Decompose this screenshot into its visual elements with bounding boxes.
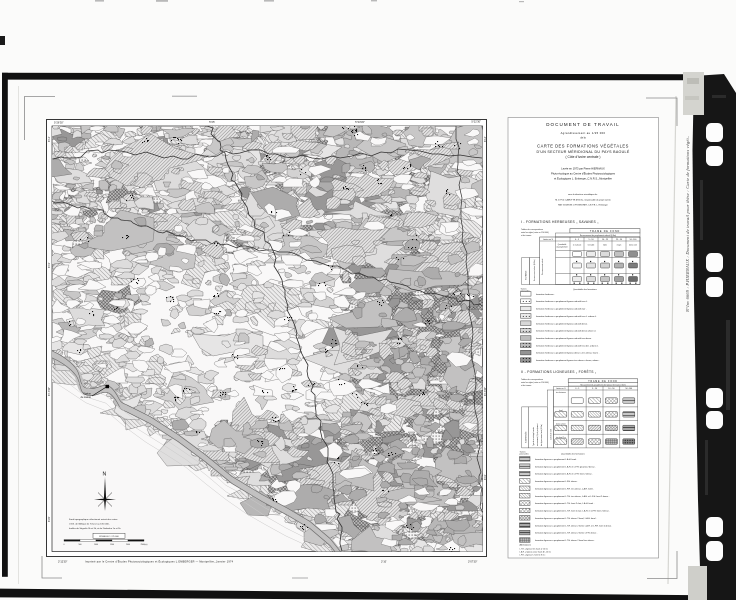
svg-text:L.F.H. = ligneux h. forml: L.F.H. = ligneux h. forml (< 8 m ) [520, 554, 546, 557]
svg-text:DOCUMENT DE TRAVAIL: DOCUMENT DE TRAVAIL [546, 122, 620, 127]
svg-text:Recouvrement du peuplement des: Recouvrement du peuplement des ligneux t… [580, 383, 626, 386]
svg-text:Imprimé par le Centre d'Études: Imprimé par le Centre d'Études Phytosoci… [85, 561, 234, 564]
svg-text:Tableau de correspondance: Tableau de correspondance [521, 229, 543, 231]
svg-text:L.T.H. = ligneux très hauts: L.T.H. = ligneux très hauts (> 10 m) [520, 548, 548, 551]
svg-text:5°22'30": 5°22'30" [471, 120, 481, 124]
svg-text:Levée en 1973 par Pierre HIERN: Levée en 1973 par Pierre HIERNAUX [561, 167, 605, 171]
svg-text:formation ligneuse a peuplemen: formation ligneuse a peuplement L.T.H. d… [535, 532, 598, 535]
svg-text:6°13': 6°13' [484, 136, 487, 142]
svg-text:I.G.N. de l'Afrique de l'Ouest: I.G.N. de l'Afrique de l'Ouest au 1/50 0… [69, 523, 110, 526]
svg-text:Recouvrement arboré: Recouvrement arboré [541, 259, 544, 275]
svg-text:Limites en %: Limites en % [556, 387, 566, 390]
svg-text:I - FORMATIONS HERBEUSES „ S: I - FORMATIONS HERBEUSES „ SAVANES „ [521, 220, 599, 224]
svg-text:de la: de la [580, 137, 586, 140]
svg-text:et les trames: et les trames [521, 234, 531, 237]
svg-text:Agrandissement au 1/25 000: Agrandissement au 1/25 000 [561, 131, 606, 135]
svg-text:formation herbeuse a peuplemen: formation herbeuse a peuplement ligneux … [536, 352, 600, 355]
svg-text:50 -100: 50 -100 [630, 239, 638, 241]
svg-text:formation ligneuse a peuplemen: formation ligneuse a peuplement L.T.H. t… [535, 495, 610, 498]
svg-text:formation herbeuse a peuplemen: formation herbeuse a peuplement ligneux … [536, 308, 587, 311]
svg-text:Recouvrement du peuplement arb: Recouvrement du peuplement arbustif (2-8… [580, 234, 617, 237]
svg-text:0: 0 [64, 544, 65, 546]
svg-text:formation herbeuse a peuplemen: formation herbeuse a peuplement ligneux … [536, 337, 593, 340]
svg-text:2°10': 2°10' [381, 561, 387, 564]
svg-text:2500(m): 2500(m) [141, 544, 148, 546]
svg-text:SUBMERGÉE: SUBMERGÉE [524, 431, 527, 443]
svg-text:II - FORMATIONS LIGNEUSES „: II - FORMATIONS LIGNEUSES „ FORÊTS „ [521, 369, 596, 374]
svg-text:1000: 1000 [94, 544, 98, 546]
svg-text:formation ligneuse a peuplemen: formation ligneuse a peuplement L.F.H. t… [535, 487, 594, 490]
svg-text:Tableau de correspondance: Tableau de correspondance [521, 379, 543, 381]
svg-text:6°20': 6°20' [48, 516, 51, 522]
svg-text:Quantitatifs des formations: Quantitatifs des formations [573, 288, 597, 291]
svg-text:formation herbeuse .: formation herbeuse . [536, 293, 555, 296]
svg-text:5°25': 5°25' [209, 120, 215, 124]
svg-text:Fond topographique sélectionné: Fond topographique sélectionné extrait d… [69, 518, 118, 521]
svg-text:formation herbeuse a peuplemen: formation herbeuse a peuplement ligneux … [536, 322, 589, 325]
svg-text:formation herbeuse a peuplemen: formation herbeuse a peuplement ligneux … [536, 359, 600, 362]
svg-text:S/CHARGE: S/CHARGE [525, 270, 528, 280]
svg-text:6°15': 6°15' [48, 262, 51, 268]
svg-text:formation ligneuse a peuplemen: formation ligneuse a peuplement L.T.H. d… [535, 517, 597, 520]
svg-text:et les trames: et les trames [521, 384, 531, 387]
svg-text:5°26'30": 5°26'30" [54, 121, 64, 125]
svg-text:ponctuelles: ponctuelles [520, 453, 529, 456]
svg-text:formation ligneuse a peuplemen: formation ligneuse a peuplement L.T.H. d… [535, 539, 595, 542]
svg-text:10 - 25: 10 - 25 [602, 239, 609, 241]
svg-text:6°17'30": 6°17'30" [484, 387, 487, 396]
svg-text:faible: faible [603, 245, 607, 247]
svg-text:formation herbeuse a peuplemen: formation herbeuse a peuplement ligneux … [536, 315, 597, 318]
svg-text:500: 500 [79, 544, 82, 546]
svg-text:6°17'30": 6°17'30" [48, 387, 51, 396]
svg-text:TRAME DE FOND: TRAME DE FOND [590, 230, 620, 233]
svg-text:feuilles de Séguéla 2b et 2d,: feuilles de Séguéla 2b et 2d, et de Dimb… [69, 527, 121, 530]
svg-text:M. le Prof. LAMOTTE (E.N.S.),: M. le Prof. LAMOTTE (E.N.S.), responsabl… [555, 198, 611, 201]
svg-text:de Lamto: de Lamto [81, 396, 92, 399]
svg-text:Quantitatifs des formations: Quantitatifs des formations [561, 453, 585, 456]
svg-text:formation ligneuse a peuplemen: formation ligneuse a peuplement L.T.H. f… [535, 502, 595, 505]
svg-text:CARTE DES FORMATIONS VÉGÉTA: CARTE DES FORMATIONS VÉGÉTALES [537, 144, 629, 149]
svg-text:6°13': 6°13' [48, 136, 51, 142]
svg-text:formation herbeuse a peuplemen: formation herbeuse a peuplement ligneux … [536, 344, 599, 347]
svg-text:Abréviations: Abréviations [520, 544, 531, 547]
svg-text:50 -100: 50 -100 [625, 388, 633, 390]
svg-text:formation ligneuse a peuplemen: formation ligneuse a peuplement L.T.H. f… [535, 510, 610, 513]
svg-text:entre les sigles (carte au 1/5: entre les sigles (carte au 1/50 000) [521, 381, 549, 384]
svg-text:N°Inv 6669 : P.HIERNAUX : Docu: N°Inv 6669 : P.HIERNAUX : Document de tr… [685, 135, 690, 313]
svg-text:formation herbeuse a peuplemen: formation herbeuse a peuplement ligneux … [536, 300, 588, 303]
svg-text:formation ligneuse a peuplemen: formation ligneuse a peuplement L.T.H. d… [535, 524, 613, 527]
svg-text:formation ligneuse a peuplemen: formation ligneuse a peuplement L.A.H. e… [535, 465, 596, 468]
svg-text:5°23'45": 5°23'45" [355, 120, 365, 124]
svg-text:entre les sigles (carte au 1/5: entre les sigles (carte au 1/50 000) [521, 231, 549, 234]
svg-text:6°19': 6°19' [484, 474, 487, 480]
svg-text:( Côte d'Ivoire centrale ): ( Côte d'Ivoire centrale ) [565, 155, 600, 159]
svg-text:moyen: moyen [617, 245, 622, 247]
svg-text:du peuplement: du peuplement [556, 246, 568, 249]
svg-text:formation ligneuse a peuplemen: formation ligneuse a peuplement L.A.H. f… [535, 458, 578, 461]
svg-text:Limites en %: Limites en % [543, 238, 554, 241]
svg-text:sous la direction scientifique: sous la direction scientifique de : [568, 193, 598, 196]
svg-text:N: N [103, 472, 107, 478]
svg-text:D'UN SECTEUR MÉRIDIONAL DU PAY: D'UN SECTEUR MÉRIDIONAL DU PAYS BAOULÉ [536, 149, 629, 154]
svg-text:L.A.H. = ligneux assez hauts (: L.A.H. = ligneux assez hauts (8 - 10 m) [520, 551, 552, 554]
svg-text:formation ligneuse a peuplemen: formation ligneuse a peuplement L.A.H. e… [535, 473, 593, 476]
svg-text:2000: 2000 [126, 544, 130, 546]
svg-text:formation herbeuse a peuplemen: formation herbeuse a peuplement ligneux … [536, 330, 597, 333]
svg-text:5 - 10: 5 - 10 [588, 239, 594, 241]
svg-text:formation ligneuse a peuplemen: formation ligneuse a peuplement L.F.H. d… [535, 480, 578, 483]
svg-text:ÉCHELLE 1 / 25 000: ÉCHELLE 1 / 25 000 [99, 535, 119, 538]
svg-text:2°07'30": 2°07'30" [468, 561, 477, 564]
svg-text:MM. GODRON et POISSONET, C.E.P: MM. GODRON et POISSONET, C.E.P.E. L. Emb… [558, 203, 608, 206]
svg-text:5 - 10: 5 - 10 [592, 388, 598, 390]
svg-text:Station: Station [83, 393, 91, 396]
svg-text:1500: 1500 [110, 544, 114, 546]
svg-text:2°12'30": 2°12'30" [58, 561, 67, 564]
svg-text:25 - 50: 25 - 50 [616, 239, 623, 241]
svg-text:10 - 50: 10 - 50 [608, 388, 615, 390]
